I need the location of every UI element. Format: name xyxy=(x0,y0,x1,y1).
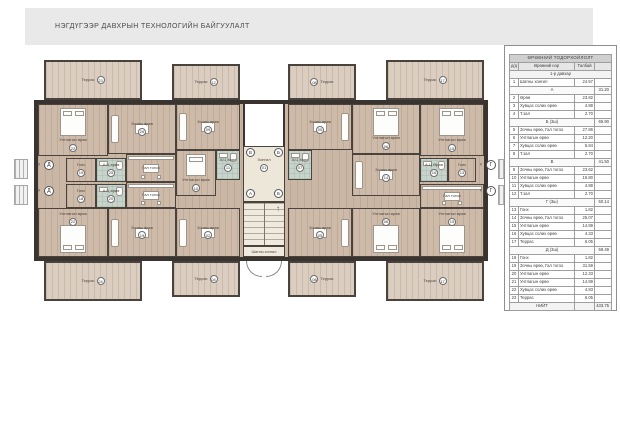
table-row: 14Зочны өрөө, Гал тогоо25.07 xyxy=(509,215,611,223)
room-entry-19: Гонх19 xyxy=(66,158,96,182)
cell-subtotal xyxy=(594,255,611,263)
furniture xyxy=(439,225,465,253)
room-label: Унтлагын өрөө xyxy=(59,212,86,217)
total-label: НИЙТ xyxy=(509,303,574,311)
cell-no: 15 xyxy=(509,223,518,231)
room-label: Унтлагын өрөө xyxy=(59,138,86,143)
cell-subtotal xyxy=(594,271,611,279)
room-label-group: Унтлагын өрөө15 xyxy=(438,138,465,152)
furniture xyxy=(75,245,84,250)
room-label: А.Ц өрөө xyxy=(292,158,309,163)
room-number: 06 xyxy=(382,142,390,150)
cell-area: 2.70 xyxy=(574,111,594,119)
title-band: НЭГДҮГЭЭР ДАВХРЫН ТЕХНОЛОГИЙН БАЙГУУЛАЛТ xyxy=(25,8,593,45)
cell-area: 23.62 xyxy=(574,167,594,175)
cell-subtotal xyxy=(594,135,611,143)
col-header-area: Талбай xyxy=(574,63,594,71)
cell-subtotal xyxy=(594,215,611,223)
room-number: 13 xyxy=(458,169,466,177)
room-label-group: Унтлагын өрөө10 xyxy=(182,178,209,192)
cell-subtotal xyxy=(594,295,611,303)
cell-no: 3 xyxy=(509,103,518,111)
room-number: 12 xyxy=(210,78,218,86)
cell-subtotal xyxy=(594,143,611,151)
room-terrace-12: Террас12 xyxy=(172,64,240,100)
corridor-label-group: Хонгил 01 xyxy=(243,158,285,172)
table-title-row: ӨРӨӨНИЙ ТОДОРХОЙЛОЛТ xyxy=(509,55,611,63)
room-label-group: Гонх19 xyxy=(77,163,85,177)
cell-area: 25.07 xyxy=(574,215,594,223)
room-number: 04 xyxy=(210,275,218,283)
furniture xyxy=(373,225,399,253)
cell-area: 4.88 xyxy=(574,103,594,111)
room-number: 02 xyxy=(204,231,212,239)
room-label-group: Гонх18 xyxy=(77,189,85,203)
room-bath-11: А.Ц өрөө11 xyxy=(216,150,240,180)
room-label: Унтлагын өрөө xyxy=(372,212,399,217)
cell-subtotal xyxy=(594,151,611,159)
room-bedroom-06: Унтлагын өрөө06 xyxy=(352,104,420,154)
section-subtotal: 65.90 xyxy=(594,119,611,127)
cell-area: 5.84 xyxy=(574,143,594,151)
cell-name: Зочны өрөө, Гал тогоо xyxy=(518,127,574,135)
cell-no: 23 xyxy=(509,295,518,303)
col-header-no: д/д xyxy=(509,63,518,71)
table-row: 11Хувцас солих өрөө4.88 xyxy=(509,183,611,191)
table-row: 3Хувцас солих өрөө4.88 xyxy=(509,103,611,111)
room-label: Гал тогоо xyxy=(443,194,460,199)
room-number: 09 xyxy=(204,126,212,134)
cell-subtotal xyxy=(594,287,611,295)
room-label: Террас xyxy=(194,80,207,85)
room-label-group: 08Террас xyxy=(310,275,333,283)
room-terrace-04: Террас04 xyxy=(172,261,240,297)
table-row: 7Хувцас солих өрөө5.84 xyxy=(509,143,611,151)
furniture xyxy=(63,111,72,116)
room-living-14: Зочны өрөө14 xyxy=(352,154,420,196)
corridor-number: 01 xyxy=(260,164,268,172)
table-row: 4Т.зал2.70 xyxy=(509,111,611,119)
room-bedroom-15-bottom: Унтлагын өрөө15 xyxy=(420,208,484,257)
furniture xyxy=(63,245,72,250)
room-label: А.Ц өрөө xyxy=(103,189,120,194)
col-header-name: Өрөөний нэр xyxy=(518,63,574,71)
cell-area: 15.80 xyxy=(574,175,594,183)
room-bath-20: А.Ц өрөө20 xyxy=(96,184,126,208)
cell-area: 12.33 xyxy=(574,271,594,279)
room-label-group: Зочны өрөө02 xyxy=(197,226,219,240)
cell-name: Гонх xyxy=(518,207,574,215)
cell-name: Хувцас солих өрөө xyxy=(518,103,574,111)
room-label: Зочны өрөө xyxy=(375,168,397,173)
exterior-stair-left-bottom xyxy=(14,185,28,205)
cell-subtotal xyxy=(594,207,611,215)
room-terrace-17-bottom: Террас17 xyxy=(386,261,484,301)
axis-marker-b-top: Б xyxy=(274,148,283,157)
table-row: 10Унтлагын өрөө15.80 xyxy=(509,175,611,183)
room-label-group: Унтлагын өрөө22 xyxy=(59,212,86,226)
room-number: 19 xyxy=(77,169,85,177)
cell-area: 6.05 xyxy=(574,295,594,303)
cell-no: 20 xyxy=(509,271,518,279)
total-value: 433.75 xyxy=(594,303,611,311)
cell-no: 2 xyxy=(509,95,518,103)
room-label-group: Зочны өрөө26 xyxy=(131,122,153,136)
table-title: ӨРӨӨНИЙ ТОДОРХОЙЛОЛТ xyxy=(509,55,611,63)
section-name: В xyxy=(509,159,594,167)
room-number: 05 xyxy=(316,231,324,239)
cell-name: Өрөө xyxy=(518,95,574,103)
furniture xyxy=(60,225,86,253)
furniture xyxy=(141,201,145,205)
room-label-group: Гонх13 xyxy=(458,163,466,177)
cell-name: Унтлагын өрөө xyxy=(518,223,574,231)
room-bedroom-06-bottom: Унтлагын өрөө06 xyxy=(352,208,420,257)
cell-name: Хувцас солих өрөө xyxy=(518,183,574,191)
room-number: 23 xyxy=(97,76,105,84)
table-row: 23Террас6.05 xyxy=(509,295,611,303)
cell-subtotal xyxy=(594,191,611,199)
room-terrace-08-bottom: 08Террас xyxy=(288,261,356,297)
room-number: 25 xyxy=(107,169,115,177)
room-label-group: 08Террас xyxy=(310,78,333,86)
room-label-group: Зочны өрөө09 xyxy=(197,120,219,134)
cell-name: Унтлагын өрөө xyxy=(518,135,574,143)
room-label-group: А.Ц өрөө25 xyxy=(103,163,120,177)
table-body: 1Шатны хонгил24.57А31.202Өрөө23.823Хувца… xyxy=(509,79,611,303)
cell-name: Террас xyxy=(518,239,574,247)
furniture xyxy=(186,154,206,176)
room-label: Террас xyxy=(194,277,207,282)
room-label-group: Зочны өрөө19 xyxy=(131,226,153,240)
section-name: Б (3ш) xyxy=(509,119,594,127)
furniture xyxy=(341,219,349,247)
room-label: Унтлагын өрөө xyxy=(438,212,465,217)
room-label: Гал тогоо xyxy=(142,193,159,198)
room-terrace-23: Террас23 xyxy=(44,60,142,100)
furniture xyxy=(141,175,145,179)
room-label-group: А.Ц өрөө20 xyxy=(103,189,120,203)
cell-area: 24.57 xyxy=(574,79,594,87)
cell-area: 12.20 xyxy=(574,135,594,143)
cell-no: 12 xyxy=(509,191,518,199)
room-living-26: Зочны өрөө26 xyxy=(108,104,176,154)
room-bath-16: А.Ц Өрөө16 xyxy=(420,158,448,182)
room-number: 11 xyxy=(224,164,232,172)
room-label-group: Террас17 xyxy=(423,277,446,285)
furniture xyxy=(189,157,203,162)
room-terrace-17-top: Террас17 xyxy=(386,60,484,100)
room-label-group: Террас04 xyxy=(194,275,217,283)
furniture xyxy=(157,201,161,205)
room-label: А.Ц Өрөө xyxy=(425,163,443,168)
room-number: 17 xyxy=(439,277,447,285)
table-row: 8Т.зал2.70 xyxy=(509,151,611,159)
room-label: Террас xyxy=(423,78,436,83)
room-number: 24 xyxy=(97,277,105,285)
col-header-subtotal xyxy=(594,63,611,71)
room-label: Террас xyxy=(320,80,333,85)
section-row: В41.50 xyxy=(509,159,611,167)
room-number: 10 xyxy=(192,184,200,192)
table-row: 13Гонх1.82 xyxy=(509,207,611,215)
furniture xyxy=(376,245,385,250)
room-label-group: Гал тогоо xyxy=(142,193,159,198)
cell-subtotal xyxy=(594,167,611,175)
cell-name: Террас xyxy=(518,295,574,303)
cell-name: Унтлагын өрөө xyxy=(518,279,574,287)
cell-no: 13 xyxy=(509,207,518,215)
furniture xyxy=(373,108,399,136)
room-number: 19 xyxy=(138,231,146,239)
drawing-sheet: НЭГДҮГЭЭР ДАВХРЫН ТЕХНОЛОГИЙН БАЙГУУЛАЛТ… xyxy=(0,0,620,429)
axis-marker-b-bottom: Б xyxy=(274,189,283,198)
table-row: 19Зочны өрөө, Гал тогоо31.59 xyxy=(509,263,611,271)
room-bath-07: А.Ц өрөө07 xyxy=(288,150,312,180)
cell-name: Шатны хонгил xyxy=(518,79,574,87)
table-row: 20Унтлагын өрөө12.33 xyxy=(509,271,611,279)
cell-no: 8 xyxy=(509,151,518,159)
floor-header: 1-р давхар xyxy=(509,71,611,79)
room-living-05: Зочны өрөө05 xyxy=(288,104,352,150)
section-marker-g-bottom: Г xyxy=(486,186,496,196)
cell-area: 2.70 xyxy=(574,151,594,159)
room-kitchen-right: Гал тогоо xyxy=(420,184,484,208)
cell-no: 10 xyxy=(509,175,518,183)
table-row: 2Өрөө23.82 xyxy=(509,95,611,103)
axis-marker-a: А xyxy=(246,189,255,198)
floor-plan: Хонгил 01 В Б А Б ↑ Шатны хонгил › Д › Д… xyxy=(30,58,504,303)
cell-area: 31.59 xyxy=(574,263,594,271)
room-label-group: А.Ц өрөө07 xyxy=(292,158,309,172)
cell-subtotal xyxy=(594,223,611,231)
cell-area: 2.70 xyxy=(574,191,594,199)
cell-name: Зочны өрөө, Гал тогоо xyxy=(518,215,574,223)
stair-direction-arrow: ↑ xyxy=(276,205,280,213)
core-staircase: ↑ xyxy=(243,202,285,246)
cell-no: 4 xyxy=(509,111,518,119)
cell-area: 27.86 xyxy=(574,127,594,135)
section-subtotal: 59.49 xyxy=(594,247,611,255)
furniture xyxy=(439,108,465,136)
total-spacer xyxy=(574,303,594,311)
corridor-label: Хонгил xyxy=(257,158,270,163)
table-row: 5Зочны өрөө, Гал тогоо27.86 xyxy=(509,127,611,135)
room-number: 06 xyxy=(382,218,390,226)
room-label: Террас xyxy=(423,279,436,284)
table-row: 18Гонх1.82 xyxy=(509,255,611,263)
room-label-group: Унтлагын өрөө22 xyxy=(59,138,86,152)
cell-name: Т.зал xyxy=(518,111,574,119)
room-label: Зочны өрөө xyxy=(197,226,219,231)
room-number: 22 xyxy=(69,144,77,152)
section-row: А31.20 xyxy=(509,87,611,95)
cell-subtotal xyxy=(594,79,611,87)
entrance-door-swing-left xyxy=(246,261,262,277)
room-label-group: А.Ц өрөө11 xyxy=(220,158,237,172)
furniture xyxy=(442,201,446,205)
room-label: Террас xyxy=(320,277,333,282)
furniture xyxy=(388,245,397,250)
room-label-group: Зочны өрөө14 xyxy=(375,168,397,182)
room-number: 16 xyxy=(430,169,438,177)
room-label: Зочны өрөө xyxy=(309,120,331,125)
cell-subtotal xyxy=(594,103,611,111)
room-label-group: Зочны өрөө05 xyxy=(309,226,331,240)
room-label-group: Унтлагын өрөө06 xyxy=(372,136,399,150)
table-row: 1Шатны хонгил24.57 xyxy=(509,79,611,87)
cell-name: Гонх xyxy=(518,255,574,263)
section-name: Д (3ш) xyxy=(509,247,594,255)
room-label-group: Унтлагын өрөө15 xyxy=(438,212,465,226)
furniture xyxy=(75,111,84,116)
table-row: 12Т.зал2.70 xyxy=(509,191,611,199)
cell-subtotal xyxy=(594,175,611,183)
room-label-group: Гал тогоо xyxy=(443,194,460,199)
section-arrow-icon: ‹ xyxy=(480,188,482,194)
cell-name: Унтлагын өрөө xyxy=(518,175,574,183)
cell-subtotal xyxy=(594,231,611,239)
room-bedroom-22-top: Унтлагын өрөө22 xyxy=(38,104,108,156)
table-row: 22Хувцас солих өрөө4.83 xyxy=(509,287,611,295)
room-number: 22 xyxy=(69,218,77,226)
furniture xyxy=(111,219,119,247)
section-marker-d-top: Д xyxy=(44,160,54,170)
room-label: Унтлагын өрөө xyxy=(438,138,465,143)
furniture xyxy=(458,201,462,205)
section-subtotal: 41.50 xyxy=(594,159,611,167)
room-label: А.Ц өрөө xyxy=(220,158,237,163)
cell-no: 9 xyxy=(509,167,518,175)
table-row: 16Хувцас солих өрөө4.33 xyxy=(509,231,611,239)
cell-no: 21 xyxy=(509,279,518,287)
room-kitchen-left-bottom: Гал тогоо xyxy=(126,182,176,208)
furniture xyxy=(157,175,161,179)
room-number: 18 xyxy=(77,195,85,203)
section-marker-g-top: Г xyxy=(486,160,496,170)
furniture xyxy=(341,113,349,141)
exterior-stair-left-top xyxy=(14,159,28,179)
room-schedule-table: ӨРӨӨНИЙ ТОДОРХОЙЛОЛТ д/д Өрөөний нэр Тал… xyxy=(509,54,612,311)
floor-header-row: 1-р давхар xyxy=(509,71,611,79)
room-label: Гонх xyxy=(77,163,85,168)
cell-no: 5 xyxy=(509,127,518,135)
section-arrow-icon: › xyxy=(38,188,40,194)
room-label-group: Террас23 xyxy=(81,76,104,84)
core-lightwell xyxy=(243,104,285,146)
section-subtotal: 50.14 xyxy=(594,199,611,207)
furniture xyxy=(454,111,463,116)
cell-name: Унтлагын өрөө xyxy=(518,271,574,279)
table-row: 21Унтлагын өрөө14.89 xyxy=(509,279,611,287)
section-arrow-icon: ‹ xyxy=(480,162,482,168)
table-row: 15Унтлагын өрөө14.89 xyxy=(509,223,611,231)
furniture xyxy=(442,111,451,116)
room-number: 07 xyxy=(296,164,304,172)
section-name: А xyxy=(509,87,594,95)
room-label: Гал тогоо xyxy=(142,166,159,171)
section-subtotal: 31.20 xyxy=(594,87,611,95)
room-living-09: Зочны өрөө09 xyxy=(176,104,240,150)
cell-area: 6.05 xyxy=(574,239,594,247)
room-bedroom-22-bottom: Унтлагын өрөө22 xyxy=(38,208,108,257)
table-header-row: д/д Өрөөний нэр Талбай xyxy=(509,63,611,71)
furniture xyxy=(60,108,86,136)
room-label: Террас xyxy=(81,279,94,284)
furniture xyxy=(179,113,187,141)
furniture xyxy=(179,219,187,247)
room-number: 14 xyxy=(382,174,390,182)
cell-name: Зочны өрөө, Гал тогоо xyxy=(518,263,574,271)
furniture xyxy=(128,156,174,160)
section-row: Г (3ш)50.14 xyxy=(509,199,611,207)
room-bedroom-15-top: Унтлагын өрөө15 xyxy=(420,104,484,156)
room-label: Гонх xyxy=(458,163,466,168)
section-row: Б (3ш)65.90 xyxy=(509,119,611,127)
section-name: Г (3ш) xyxy=(509,199,594,207)
room-label-group: Террас17 xyxy=(423,76,446,84)
room-bath-25: А.Ц өрөө25 xyxy=(96,158,126,182)
cell-area: 14.89 xyxy=(574,279,594,287)
section-row: Д (3ш)59.49 xyxy=(509,247,611,255)
cell-area: 1.82 xyxy=(574,207,594,215)
furniture xyxy=(355,161,363,189)
room-number: 08 xyxy=(310,78,318,86)
room-number: 15 xyxy=(448,218,456,226)
room-label-group: Унтлагын өрөө06 xyxy=(372,212,399,226)
section-marker-d-bottom: Д xyxy=(44,186,54,196)
cell-area: 23.82 xyxy=(574,95,594,103)
sheet-title: НЭГДҮГЭЭР ДАВХРЫН ТЕХНОЛОГИЙН БАЙГУУЛАЛТ xyxy=(55,23,250,30)
room-label: Зочны өрөө xyxy=(131,122,153,127)
cell-no: 6 xyxy=(509,135,518,143)
axis-marker-v: В xyxy=(246,148,255,157)
room-label: Унтлагын өрөө xyxy=(372,136,399,141)
room-label-group: Зочны өрөө05 xyxy=(309,120,331,134)
cell-area: 4.83 xyxy=(574,287,594,295)
cell-name: Хувцас солих өрөө xyxy=(518,143,574,151)
cell-no: 1 xyxy=(509,79,518,87)
room-label: Зочны өрөө xyxy=(197,120,219,125)
cell-name: Т.зал xyxy=(518,191,574,199)
table-row: 6Унтлагын өрөө12.20 xyxy=(509,135,611,143)
room-terrace-08-top: 08Террас xyxy=(288,64,356,100)
cell-subtotal xyxy=(594,263,611,271)
cell-name: Хувцас солих өрөө xyxy=(518,287,574,295)
table-row: 17Террас6.05 xyxy=(509,239,611,247)
room-label-group: Гал тогоо xyxy=(142,166,159,171)
stair-hall-label: Шатны хонгил xyxy=(243,246,285,257)
room-number: 08 xyxy=(310,275,318,283)
cell-name: Хувцас солих өрөө xyxy=(518,231,574,239)
room-kitchen-left-top: Гал тогоо xyxy=(126,154,176,182)
room-bedroom-10: Унтлагын өрөө10 xyxy=(176,150,216,196)
room-label-group: Террас24 xyxy=(81,277,104,285)
cell-subtotal xyxy=(594,127,611,135)
table-row: 9Зочны өрөө, Гал тогоо23.62 xyxy=(509,167,611,175)
room-label: А.Ц өрөө xyxy=(103,163,120,168)
room-living-19: Зочны өрөө19 xyxy=(108,208,176,257)
room-number: 17 xyxy=(439,76,447,84)
cell-subtotal xyxy=(594,95,611,103)
cell-no: 7 xyxy=(509,143,518,151)
stair-divider xyxy=(264,203,265,245)
room-number: 20 xyxy=(107,195,115,203)
cell-no: 17 xyxy=(509,239,518,247)
room-label: Террас xyxy=(81,78,94,83)
cell-no: 14 xyxy=(509,215,518,223)
section-arrow-icon: › xyxy=(38,162,40,168)
